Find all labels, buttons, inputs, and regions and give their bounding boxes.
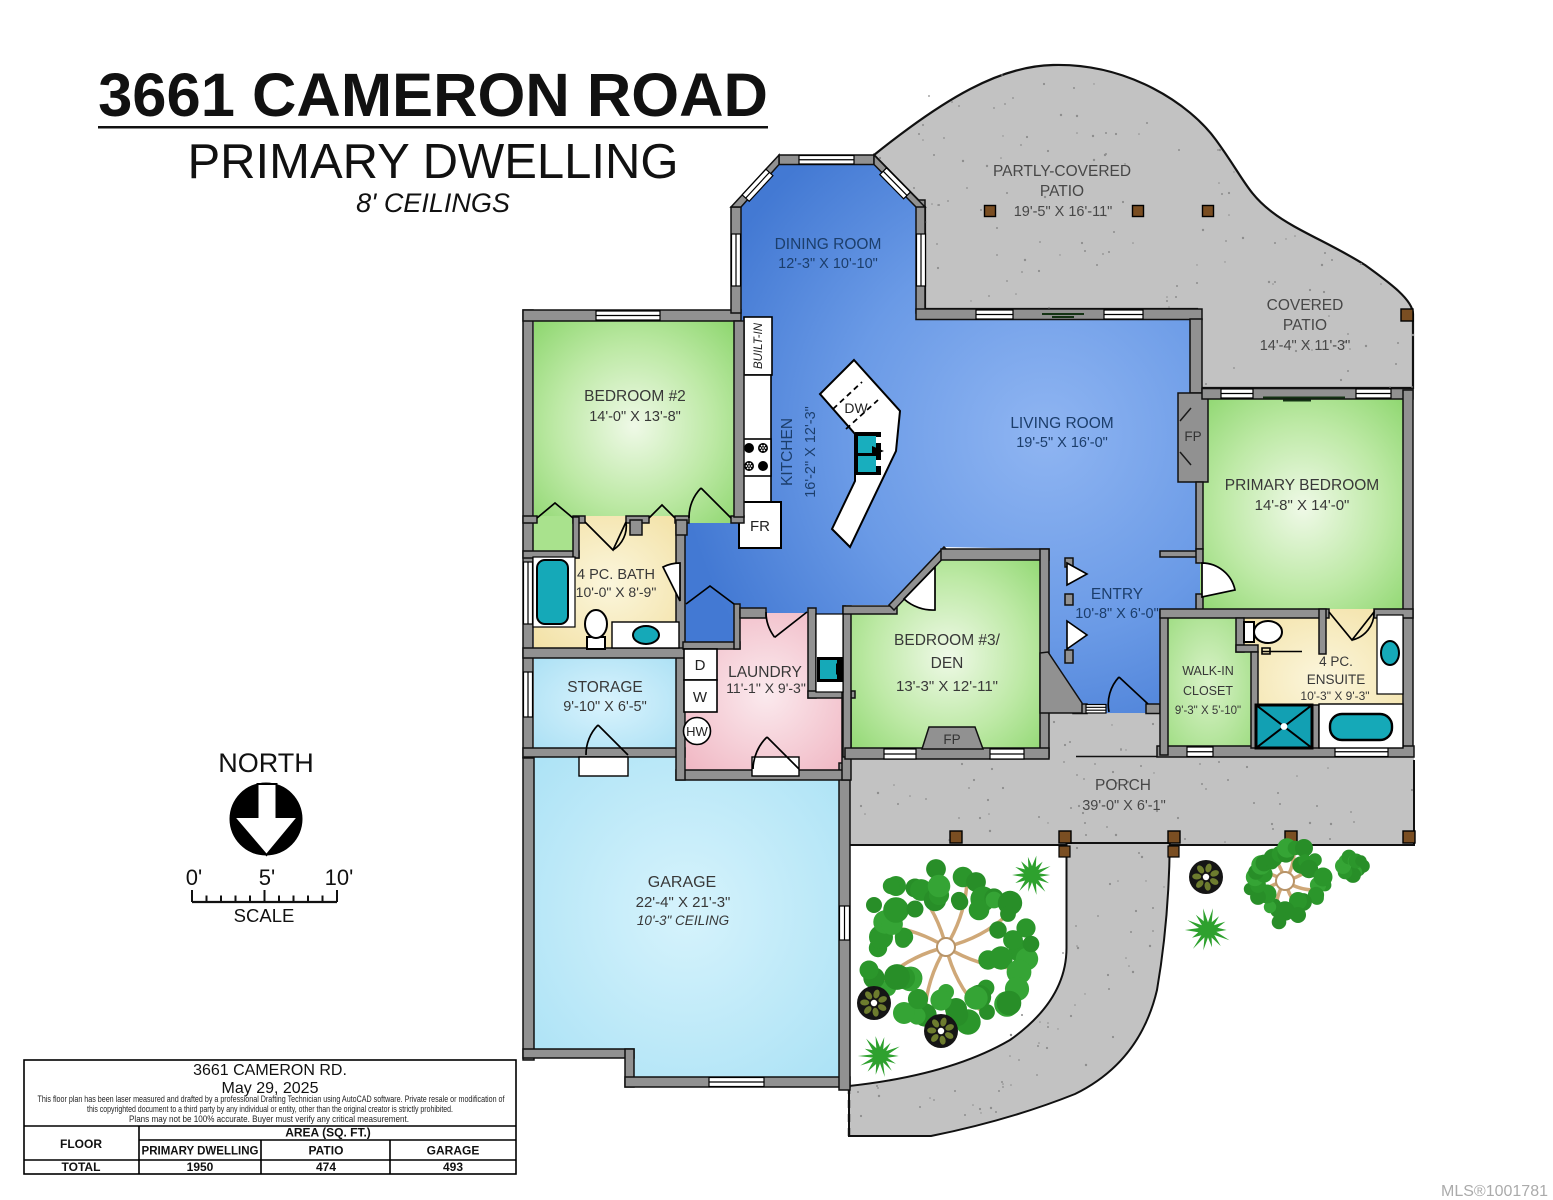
svg-text:8' CEILINGS: 8' CEILINGS bbox=[356, 188, 510, 218]
svg-text:10'-3" CEILING: 10'-3" CEILING bbox=[637, 913, 729, 928]
svg-text:9'-10" X 6'-5": 9'-10" X 6'-5" bbox=[563, 699, 647, 715]
svg-text:AREA (SQ. FT.): AREA (SQ. FT.) bbox=[285, 1126, 371, 1140]
svg-text:WALK-IN: WALK-IN bbox=[1182, 664, 1234, 678]
svg-text:14'-8" X 14'-0": 14'-8" X 14'-0" bbox=[1255, 497, 1350, 514]
svg-text:14'-0" X 13'-8": 14'-0" X 13'-8" bbox=[589, 409, 681, 425]
svg-text:TOTAL: TOTAL bbox=[62, 1160, 101, 1174]
svg-text:16'-2" X 12'-3": 16'-2" X 12'-3" bbox=[803, 406, 819, 498]
svg-text:3661 CAMERON RD.: 3661 CAMERON RD. bbox=[193, 1062, 347, 1079]
svg-text:NORTH: NORTH bbox=[218, 748, 314, 778]
svg-text:BUILT-IN: BUILT-IN bbox=[753, 322, 765, 369]
svg-text:HW: HW bbox=[686, 724, 708, 739]
svg-text:4 PC. BATH: 4 PC. BATH bbox=[577, 567, 655, 583]
svg-text:4 PC.: 4 PC. bbox=[1319, 654, 1353, 669]
svg-text:11'-1" X 9'-3": 11'-1" X 9'-3" bbox=[726, 680, 806, 696]
svg-text:14'-4" X 11'-3": 14'-4" X 11'-3" bbox=[1260, 338, 1351, 354]
svg-text:This floor plan has been laser: This floor plan has been laser measured … bbox=[38, 1094, 505, 1104]
svg-text:10'-8" X 6'-0": 10'-8" X 6'-0" bbox=[1075, 606, 1159, 622]
svg-text:493: 493 bbox=[443, 1160, 463, 1174]
svg-text:19'-5" X 16'-11": 19'-5" X 16'-11" bbox=[1014, 204, 1113, 220]
svg-text:W: W bbox=[693, 689, 708, 706]
svg-text:9'-3" X 5'-10": 9'-3" X 5'-10" bbox=[1175, 705, 1241, 717]
svg-text:ENTRY: ENTRY bbox=[1091, 586, 1143, 603]
svg-text:MLS®1001781: MLS®1001781 bbox=[1441, 1183, 1548, 1200]
svg-text:PORCH: PORCH bbox=[1095, 777, 1151, 794]
svg-text:STORAGE: STORAGE bbox=[567, 679, 643, 696]
svg-text:LAUNDRY: LAUNDRY bbox=[728, 664, 802, 681]
svg-text:PARTLY-COVERED: PARTLY-COVERED bbox=[993, 163, 1131, 180]
svg-text:PATIO: PATIO bbox=[1283, 317, 1327, 334]
svg-text:KITCHEN: KITCHEN bbox=[779, 418, 796, 486]
svg-text:474: 474 bbox=[316, 1160, 336, 1174]
svg-text:DINING ROOM: DINING ROOM bbox=[775, 236, 882, 253]
svg-text:PRIMARY DWELLING: PRIMARY DWELLING bbox=[187, 135, 678, 189]
svg-text:0': 0' bbox=[186, 865, 202, 890]
svg-text:BEDROOM #2: BEDROOM #2 bbox=[584, 388, 686, 405]
svg-text:LIVING ROOM: LIVING ROOM bbox=[1010, 415, 1113, 432]
svg-text:1950: 1950 bbox=[187, 1160, 214, 1174]
svg-text:FLOOR: FLOOR bbox=[60, 1137, 102, 1151]
svg-text:PRIMARY DWELLING: PRIMARY DWELLING bbox=[142, 1146, 259, 1158]
svg-text:D: D bbox=[695, 657, 706, 674]
svg-text:13'-3" X 12'-11": 13'-3" X 12'-11" bbox=[896, 678, 998, 695]
svg-text:3661 CAMERON ROAD: 3661 CAMERON ROAD bbox=[98, 61, 768, 130]
svg-text:CLOSET: CLOSET bbox=[1183, 684, 1233, 698]
svg-text:GARAGE: GARAGE bbox=[427, 1144, 480, 1158]
svg-text:FP: FP bbox=[1184, 429, 1201, 444]
svg-text:DEN: DEN bbox=[931, 655, 964, 672]
svg-text:39'-0" X 6'-1": 39'-0" X 6'-1" bbox=[1082, 798, 1166, 814]
svg-text:Plans may not be 100% accurate: Plans may not be 100% accurate. Buyer mu… bbox=[129, 1114, 409, 1124]
svg-text:22'-4" X 21'-3": 22'-4" X 21'-3" bbox=[636, 894, 731, 911]
svg-text:12'-3" X 10'-10": 12'-3" X 10'-10" bbox=[778, 256, 878, 272]
svg-text:DW: DW bbox=[844, 400, 868, 416]
svg-text:10': 10' bbox=[325, 865, 354, 890]
svg-text:5': 5' bbox=[259, 865, 275, 890]
svg-text:PATIO: PATIO bbox=[1040, 183, 1084, 200]
svg-text:10'-3" X 9'-3": 10'-3" X 9'-3" bbox=[1300, 689, 1369, 703]
svg-text:SCALE: SCALE bbox=[234, 905, 295, 926]
svg-text:BEDROOM #3/: BEDROOM #3/ bbox=[894, 632, 1001, 649]
svg-text:PRIMARY BEDROOM: PRIMARY BEDROOM bbox=[1225, 477, 1379, 494]
svg-text:19'-5" X 16'-0": 19'-5" X 16'-0" bbox=[1016, 435, 1108, 451]
svg-text:COVERED: COVERED bbox=[1267, 297, 1344, 314]
svg-text:FR: FR bbox=[750, 518, 770, 535]
svg-text:FP: FP bbox=[943, 732, 960, 747]
svg-text:10'-0" X 8'-9": 10'-0" X 8'-9" bbox=[576, 584, 657, 600]
svg-text:PATIO: PATIO bbox=[309, 1144, 344, 1158]
svg-text:ENSUITE: ENSUITE bbox=[1307, 672, 1366, 687]
svg-text:this copyrighted document to a: this copyrighted document to a third par… bbox=[87, 1104, 453, 1114]
svg-text:GARAGE: GARAGE bbox=[648, 874, 716, 891]
